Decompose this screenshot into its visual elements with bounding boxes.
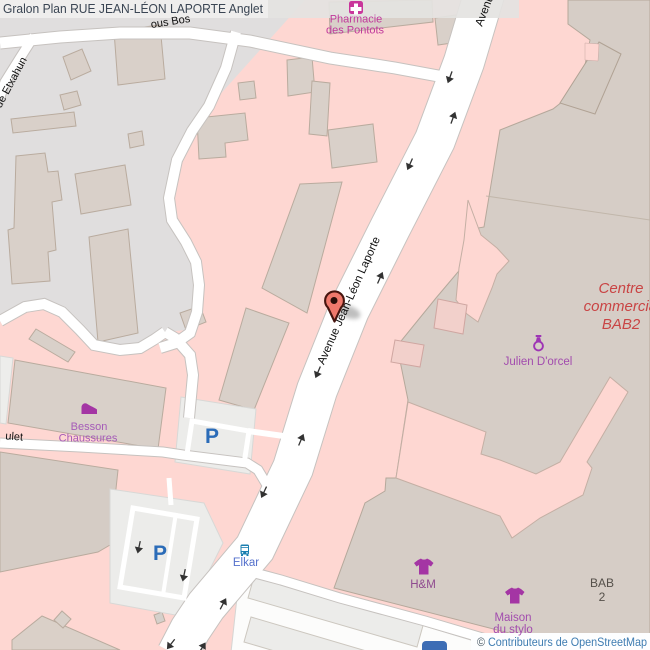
svg-text:H&M: H&M	[410, 579, 436, 591]
svg-text:P: P	[205, 425, 219, 448]
svg-text:BAB: BAB	[590, 576, 614, 590]
svg-text:© Contributeurs de OpenStreetM: © Contributeurs de OpenStreetMap	[477, 635, 647, 649]
svg-text:ulet: ulet	[5, 430, 24, 443]
svg-text:P: P	[153, 542, 167, 565]
svg-text:Chaussures: Chaussures	[59, 433, 118, 445]
svg-text:BAB2: BAB2	[602, 316, 641, 333]
svg-text:Elkar: Elkar	[233, 557, 259, 569]
svg-text:des Pontots: des Pontots	[326, 25, 385, 37]
svg-text:Gralon Plan RUE JEAN-LÉON LAPO: Gralon Plan RUE JEAN-LÉON LAPORTE Anglet	[3, 1, 264, 16]
svg-text:Centre: Centre	[598, 280, 643, 297]
svg-text:Maison: Maison	[494, 612, 531, 624]
svg-text:2: 2	[599, 590, 606, 604]
svg-text:commercial: commercial	[584, 298, 650, 315]
svg-text:Besson: Besson	[71, 421, 108, 433]
svg-text:Julien D'orcel: Julien D'orcel	[504, 356, 573, 368]
svg-text:du stylo: du stylo	[493, 624, 533, 636]
